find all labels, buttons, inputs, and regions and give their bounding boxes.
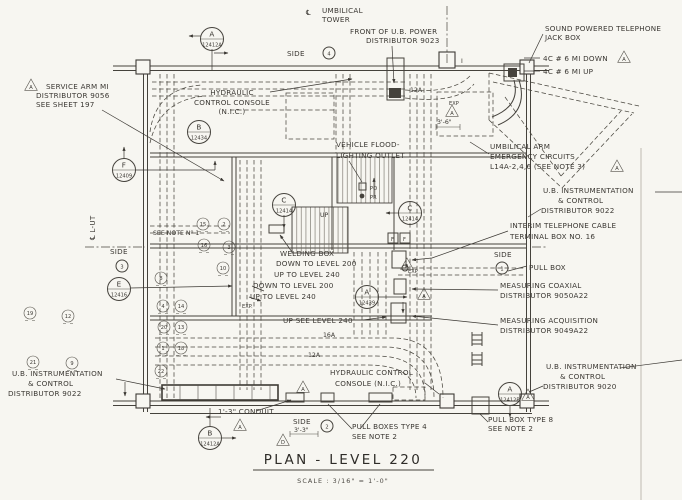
distributor-9022-box — [162, 385, 278, 400]
svg-text:A: A — [364, 288, 369, 297]
svg-text:15: 15 — [200, 222, 206, 228]
svg-text:1: 1 — [500, 266, 503, 272]
svg-text:12416: 12416 — [111, 293, 127, 299]
plan-mark-21: 21 — [27, 356, 39, 370]
svg-text:A: A — [622, 57, 626, 63]
svg-text:13: 13 — [178, 325, 184, 331]
ref-circle-e: E12416 — [108, 278, 131, 301]
svg-text:12414: 12414 — [276, 209, 292, 215]
svg-text:12434: 12434 — [191, 136, 207, 142]
svg-text:DISTRIBUTOR 9056: DISTRIBUTOR 9056 — [36, 91, 110, 100]
svg-text:C: C — [407, 204, 412, 213]
label-welding-box: WELDING BOX — [280, 249, 334, 258]
svg-text:SEE SHEET 197: SEE SHEET 197 — [36, 100, 95, 109]
label-up: UP — [320, 212, 329, 219]
svg-text:UP TO LEVEL 240: UP TO LEVEL 240 — [274, 270, 340, 279]
label-hydraulic-console-bottom: HYDRAULIC CONTROL — [330, 368, 413, 377]
svg-text:L14A-2,4,6 (SEE NOTE 3): L14A-2,4,6 (SEE NOTE 3) — [490, 162, 585, 171]
coax-distributor-box — [394, 279, 406, 294]
svg-text:2: 2 — [222, 222, 225, 228]
plan-mark-18: 18 — [175, 342, 187, 356]
plan-mark-19: 19 — [24, 307, 36, 321]
svg-text:4: 4 — [161, 304, 164, 310]
svg-text:9: 9 — [70, 361, 73, 367]
welding-box — [269, 225, 284, 233]
label-pull-box-type8: PULL BOX TYPE 8 — [488, 415, 554, 424]
svg-text:21: 21 — [30, 360, 36, 366]
svg-text:B: B — [196, 123, 201, 132]
svg-text:A: A — [450, 111, 454, 117]
drawing-scale: SCALE : 3/16" = 1'-0" — [297, 477, 389, 485]
svg-text:A: A — [422, 294, 426, 300]
label-16a: 16A — [323, 332, 336, 339]
svg-text:SEE NOTE 2: SEE NOTE 2 — [352, 432, 397, 441]
svg-text:E: E — [117, 280, 122, 289]
svg-text:19: 19 — [27, 311, 33, 317]
label-measuring-acquisition: MEASURING ACQUISITION — [500, 316, 598, 325]
hydraulic-console-footprint — [393, 387, 425, 400]
svg-text:& CONTROL: & CONTROL — [28, 379, 73, 388]
svg-text:& CONTROL: & CONTROL — [560, 372, 605, 381]
plan-mark-14: 14 — [175, 300, 187, 314]
svg-text:DISTRIBUTOR 9020: DISTRIBUTOR 9020 — [543, 382, 617, 391]
svg-text:F: F — [122, 161, 126, 170]
blueprint-canvas: ℄ UMBILICAL TOWER FRONT OF U.B. POWER DI… — [0, 0, 682, 500]
label-umbilical-tower: UMBILICAL — [322, 6, 363, 15]
flag-triangle-a: A — [25, 79, 38, 91]
label-12a-top: 12A — [410, 87, 423, 94]
centerline-symbol: ℄ — [306, 8, 311, 17]
svg-text:SIDE: SIDE — [293, 417, 311, 426]
plan-number-marks: 1521631084142013118221912219 — [24, 218, 235, 379]
svg-text:DISTRIBUTOR 9023: DISTRIBUTOR 9023 — [366, 36, 440, 45]
svg-text:16: 16 — [201, 243, 207, 249]
svg-text:SIDE: SIDE — [287, 49, 305, 58]
svg-text:JACK BOX: JACK BOX — [544, 33, 581, 42]
label-tag-i: I — [461, 58, 463, 65]
plan-mark-2: 2 — [218, 218, 230, 232]
svg-text:22: 22 — [158, 369, 164, 375]
plan-mark-10: 10 — [217, 262, 229, 276]
svg-text:CONSOLE (N.I.C.): CONSOLE (N.I.C.) — [335, 379, 401, 388]
ref-circle-a: A12412B — [499, 383, 522, 406]
flag-triangle-a: A — [234, 419, 247, 431]
label-down-200: DOWN TO LEVEL 200 — [253, 281, 334, 290]
label-mi-up: 4C # 6 MI UP — [543, 67, 594, 76]
svg-text:2: 2 — [325, 424, 328, 430]
plan-mark-12: 12 — [62, 310, 74, 324]
svg-text:A: A — [29, 85, 33, 91]
flag-triangle-a: A — [618, 51, 631, 63]
plan-mark-22: 22 — [155, 365, 167, 379]
ref-circle-a: A12412A — [201, 28, 224, 51]
ref-circle-a: A12439 — [356, 286, 379, 309]
flag-triangle-d: D — [277, 434, 290, 446]
svg-text:DOWN TO LEVEL 200: DOWN TO LEVEL 200 — [276, 259, 357, 268]
svg-text:SEE NOTE 2: SEE NOTE 2 — [488, 424, 533, 433]
svg-text:SIDE: SIDE — [494, 250, 512, 259]
svg-text:A: A — [209, 30, 214, 39]
svg-text:10: 10 — [220, 266, 226, 272]
svg-text:A: A — [507, 385, 512, 394]
ref-circle-f: F12409 — [113, 159, 136, 182]
label-interim-telephone: INTERIM TELEPHONE CABLE — [510, 221, 616, 230]
blueprint-page: ℄ UMBILICAL TOWER FRONT OF U.B. POWER DI… — [0, 0, 682, 500]
label-up-see-240: UP SEE LEVEL 240 — [283, 316, 353, 325]
svg-text:A: A — [301, 387, 305, 393]
label-pull-box: PULL BOX — [529, 263, 566, 272]
drawing-title: PLAN - LEVEL 220 — [264, 452, 423, 468]
svg-text:20: 20 — [161, 325, 167, 331]
label-cl-lut: ℄ L-UT — [88, 215, 97, 240]
svg-text:EMERGENCY CIRCUITS: EMERGENCY CIRCUITS — [490, 152, 575, 161]
ref-circle-c: C12414 — [399, 202, 422, 225]
svg-text:3: 3 — [120, 264, 123, 270]
plan-mark-13: 13 — [175, 321, 187, 335]
label-front-power: FRONT OF U.B. POWER — [350, 27, 437, 36]
svg-text:12: 12 — [65, 314, 71, 320]
label-instr-9022-right: U.B. INSTRUMENTATION — [543, 186, 634, 195]
svg-text:C: C — [281, 196, 286, 205]
label-po: PO — [370, 186, 377, 192]
label-exp-1: EXP. — [242, 304, 253, 310]
label-pull-boxes-type4: PULL BOXES TYPE 4 — [352, 422, 427, 431]
ref-circle-b: B12412A — [199, 427, 222, 450]
plan-mark-8: 8 — [155, 272, 167, 286]
label-12a-mid: 12A — [308, 352, 321, 359]
label-see-note-1: SEE NOTE Nº 1 — [153, 230, 199, 237]
svg-text:12439: 12439 — [359, 301, 375, 307]
svg-text:A: A — [405, 264, 409, 270]
svg-text:A: A — [238, 425, 242, 431]
svg-text:18: 18 — [178, 346, 184, 352]
label-instr-9020: U.B. INSTRUMENTATION — [546, 362, 637, 371]
flag-triangle-a: A — [611, 160, 624, 172]
svg-text:DISTRIBUTOR 9022: DISTRIBUTOR 9022 — [8, 389, 82, 398]
svg-text:TOWER: TOWER — [321, 15, 350, 24]
label-conduit: 1'-3" CONDUIT — [218, 407, 274, 416]
svg-text:D: D — [281, 440, 285, 446]
svg-text:LIGHTING OUTLET: LIGHTING OUTLET — [336, 151, 405, 160]
label-umbilical-arm-circuits: UMBILICAL ARM — [490, 142, 550, 151]
svg-text:DISTRIBUTOR 9022: DISTRIBUTOR 9022 — [541, 206, 615, 215]
label-exp-2: EXP — [408, 269, 418, 275]
label-hydraulic-console-top: HYDRAULIC — [210, 88, 254, 97]
svg-text:TERMINAL BOX NO. 16: TERMINAL BOX NO. 16 — [509, 232, 595, 241]
svg-text:(N.I.C.): (N.I.C.) — [219, 107, 246, 116]
label-instr-9022-left: U.B. INSTRUMENTATION — [12, 369, 103, 378]
svg-text:1: 1 — [161, 346, 164, 352]
label-service-arm: SERVICE ARM MI — [46, 82, 109, 91]
title-block: PLAN - LEVEL 220 SCALE : 3/16" = 1'-0" — [253, 452, 434, 485]
label-measuring-coaxial: MEASURING COAXIAL — [500, 281, 582, 290]
stairs — [292, 157, 392, 253]
svg-text:A: A — [526, 395, 530, 401]
svg-text:4: 4 — [327, 51, 330, 57]
svg-text:CONTROL CONSOLE: CONTROL CONSOLE — [194, 98, 270, 107]
plan-mark-16: 16 — [198, 239, 210, 253]
svg-text:DISTRIBUTOR 9049A22: DISTRIBUTOR 9049A22 — [500, 326, 588, 335]
label-sound-telephone: SOUND POWERED TELEPHONE — [545, 24, 661, 33]
label-exp-3: EXP — [449, 101, 459, 107]
svg-text:8: 8 — [159, 276, 162, 282]
ref-circle-c: C12414 — [273, 194, 296, 217]
label-dim-3-6: 3'-6" — [437, 119, 452, 126]
svg-text:& CONTROL: & CONTROL — [558, 196, 603, 205]
label-pr: PR — [370, 195, 377, 201]
svg-text:12414: 12414 — [402, 217, 418, 223]
label-dim-3-3: 3'-3" — [294, 427, 309, 434]
svg-text:B: B — [207, 429, 212, 438]
svg-text:3: 3 — [227, 245, 230, 251]
svg-text:A: A — [615, 166, 619, 172]
side-marker-4: SIDE4 — [287, 47, 335, 59]
svg-text:12412A: 12412A — [200, 442, 220, 448]
svg-text:12409: 12409 — [116, 174, 132, 180]
svg-text:12412B: 12412B — [500, 398, 520, 404]
svg-text:12412A: 12412A — [202, 43, 222, 49]
label-vehicle-flood: VEHICLE FLOOD- — [336, 140, 400, 149]
label-mi-down: 4C # 6 MI DOWN — [543, 54, 608, 63]
svg-text:SIDE: SIDE — [110, 247, 128, 256]
svg-text:14: 14 — [178, 304, 184, 310]
label-fbox-2: F — [403, 237, 406, 243]
ref-circle-b: B12434 — [188, 121, 211, 144]
label-fbox-1: F — [391, 237, 394, 243]
side-marker-3: SIDE3 — [110, 247, 128, 272]
flag-triangle-a: A — [297, 381, 310, 393]
label-up-240: UP TO LEVEL 240 — [250, 292, 316, 301]
svg-text:DISTRIBUTOR 9050A22: DISTRIBUTOR 9050A22 — [500, 291, 588, 300]
